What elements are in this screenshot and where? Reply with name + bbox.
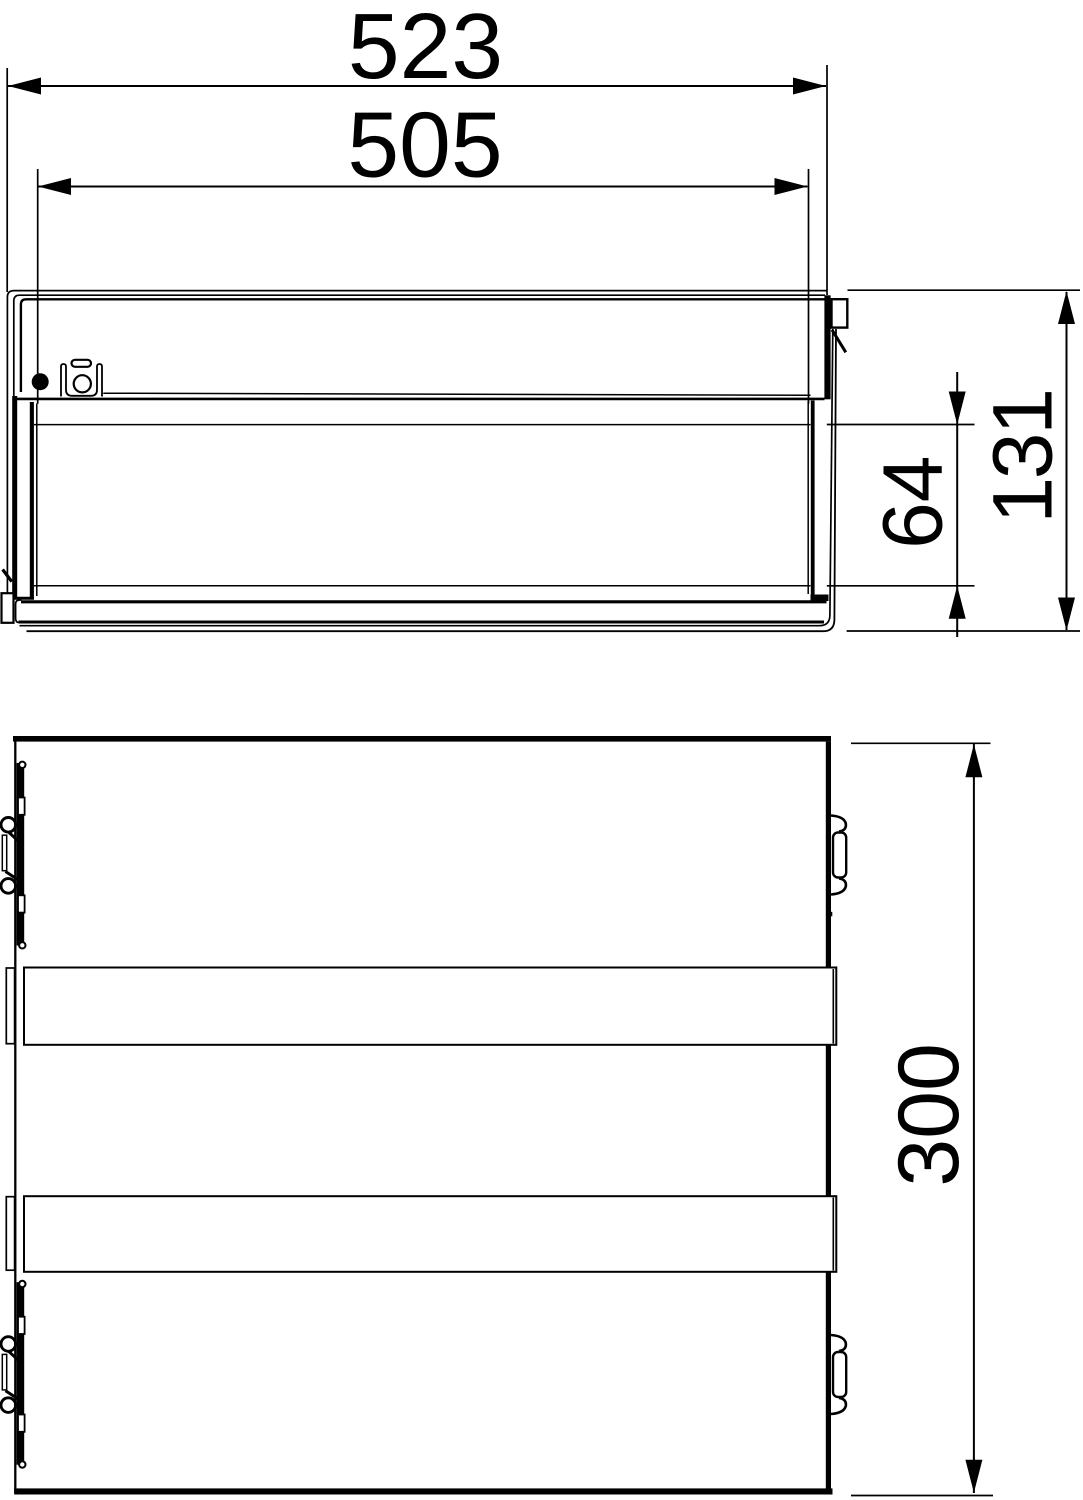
svg-text:523: 523 <box>348 0 503 98</box>
svg-text:131: 131 <box>976 390 1070 523</box>
svg-text:64: 64 <box>866 455 960 548</box>
svg-text:505: 505 <box>347 93 502 197</box>
svg-text:300: 300 <box>881 1043 977 1187</box>
